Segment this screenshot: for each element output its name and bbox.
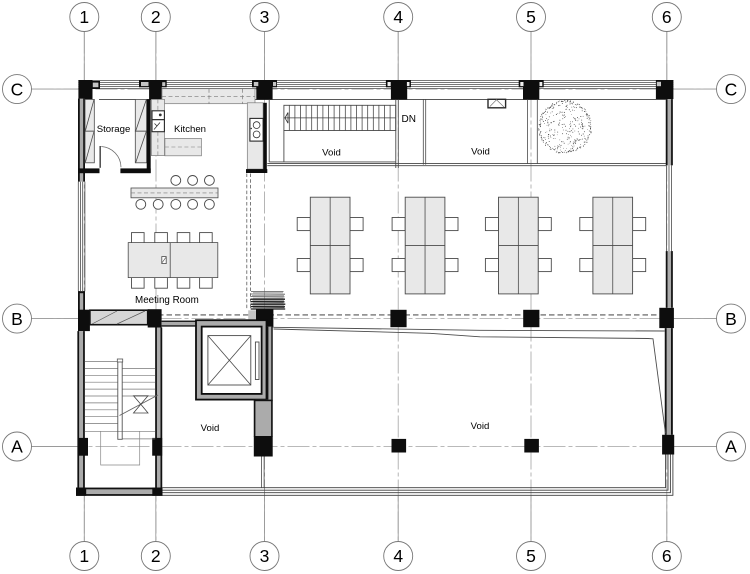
svg-text:4: 4 xyxy=(393,546,403,566)
svg-text:Void: Void xyxy=(471,147,490,158)
svg-text:3: 3 xyxy=(260,546,270,566)
svg-text:Storage: Storage xyxy=(97,124,131,135)
svg-text:Kitchen: Kitchen xyxy=(174,124,206,135)
svg-text:Void: Void xyxy=(471,421,490,432)
svg-text:2: 2 xyxy=(151,546,161,566)
svg-text:1: 1 xyxy=(79,546,89,566)
svg-text:6: 6 xyxy=(662,546,672,566)
svg-text:C: C xyxy=(725,79,738,99)
svg-text:A: A xyxy=(725,437,737,457)
svg-text:5: 5 xyxy=(526,546,536,566)
svg-text:C: C xyxy=(11,79,24,99)
svg-text:3: 3 xyxy=(260,7,270,27)
svg-text:5: 5 xyxy=(526,7,536,27)
svg-text:1: 1 xyxy=(79,7,89,27)
svg-text:Void: Void xyxy=(201,423,220,434)
svg-text:Meeting Room: Meeting Room xyxy=(135,295,199,306)
svg-text:DN: DN xyxy=(401,114,415,125)
svg-text:Void: Void xyxy=(322,148,341,159)
svg-text:6: 6 xyxy=(662,7,672,27)
svg-text:B: B xyxy=(725,309,737,329)
svg-text:4: 4 xyxy=(393,7,403,27)
svg-text:B: B xyxy=(11,309,23,329)
svg-text:2: 2 xyxy=(151,7,161,27)
svg-text:A: A xyxy=(11,437,23,457)
